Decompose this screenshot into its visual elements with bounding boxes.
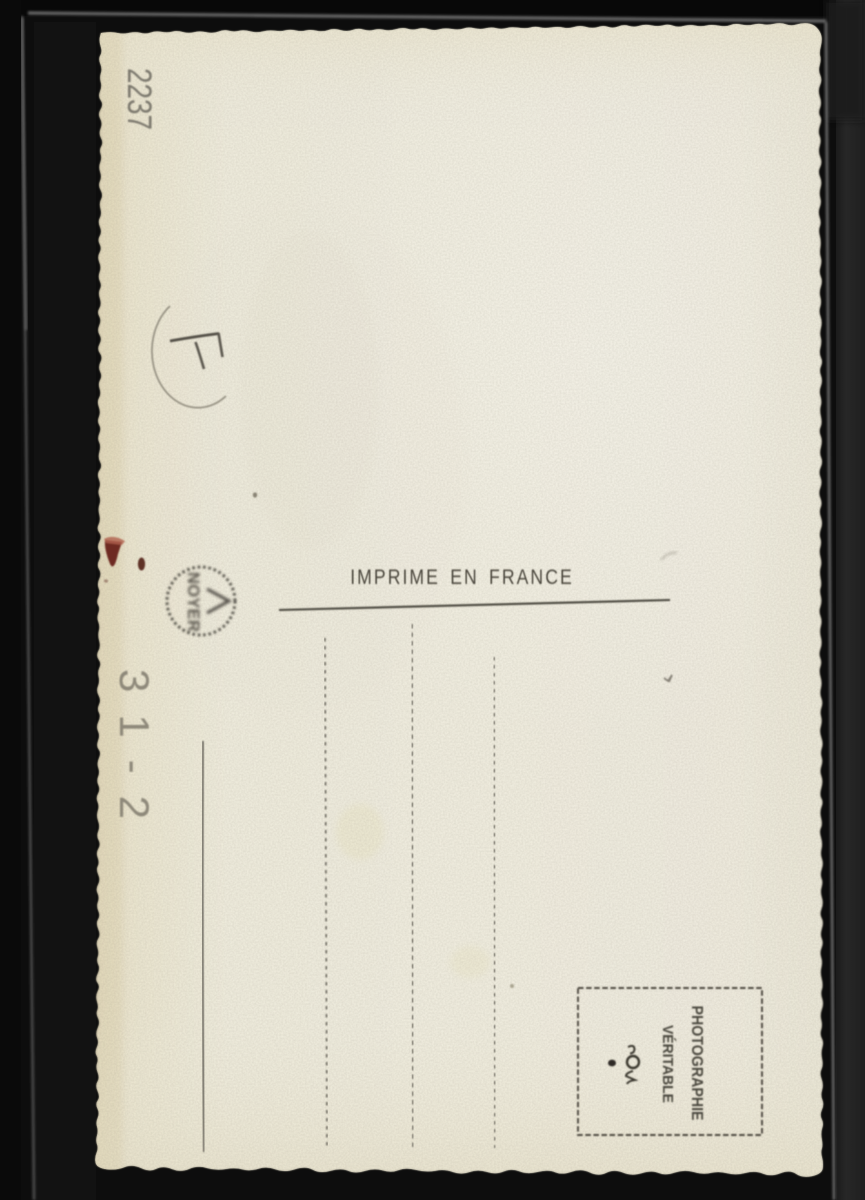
svg-text:IMPRIME EN FRANCE: IMPRIME EN FRANCE <box>350 565 574 589</box>
svg-text:NOYER: NOYER <box>184 572 202 632</box>
svg-text:2237: 2237 <box>120 68 158 130</box>
svg-text:PHOTOGRAPHIE: PHOTOGRAPHIE <box>688 1006 705 1121</box>
svg-text:VÉRITABLE: VÉRITABLE <box>659 1025 676 1103</box>
